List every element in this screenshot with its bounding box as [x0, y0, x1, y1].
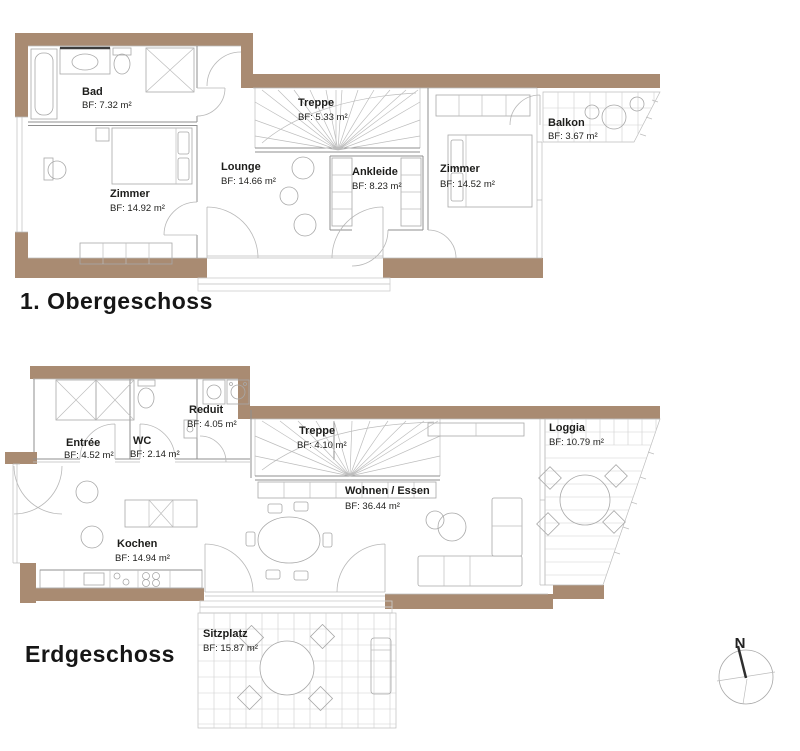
floor1-title: 1. Obergeschoss	[20, 288, 213, 314]
floor0-kitchen	[40, 481, 202, 588]
floor1-terrace-sill	[198, 278, 390, 291]
floor0-dining	[246, 502, 332, 580]
room-name-lounge: Lounge	[221, 161, 261, 173]
floor0-entree-furniture	[56, 380, 134, 420]
floor1-bedroom-right-furniture	[436, 95, 532, 207]
floor1-plan: Bad BF: 7.32 m² Zimmer BF: 14.92 m² Loun…	[15, 33, 660, 314]
room-area-treppe0: BF: 4.10 m²	[297, 440, 347, 451]
room-name-kochen: Kochen	[117, 538, 158, 550]
room-area-balkon: BF: 3.67 m²	[548, 131, 598, 142]
room-area-reduit: BF: 4.05 m²	[187, 419, 237, 430]
floor0-plan: Entrée BF: 4.52 m² WC BF: 2.14 m² Reduit…	[5, 366, 660, 728]
room-area-bad: BF: 7.32 m²	[82, 100, 132, 111]
floor1-lounge-furniture	[280, 157, 316, 236]
room-name-zimmer-l: Zimmer	[110, 188, 150, 200]
room-name-bad: Bad	[82, 86, 103, 98]
room-area-lounge: BF: 14.66 m²	[221, 176, 276, 187]
north-label: N	[735, 635, 746, 652]
room-area-wc: BF: 2.14 m²	[130, 449, 180, 460]
room-area-sitzplatz: BF: 15.87 m²	[203, 643, 258, 654]
room-area-treppe1: BF: 5.33 m²	[298, 112, 348, 123]
room-area-loggia: BF: 10.79 m²	[549, 437, 604, 448]
room-name-wc: WC	[133, 435, 151, 447]
room-area-kochen: BF: 14.94 m²	[115, 553, 170, 564]
floor0-sitzplatz	[198, 601, 396, 728]
room-name-wohnen: Wohnen / Essen	[345, 485, 430, 497]
room-name-loggia: Loggia	[549, 422, 586, 434]
floorplan-page: Bad BF: 7.32 m² Zimmer BF: 14.92 m² Loun…	[0, 0, 800, 751]
room-area-zimmer-l: BF: 14.92 m²	[110, 203, 165, 214]
room-name-treppe1: Treppe	[298, 97, 334, 109]
room-area-ankleide: BF: 8.23 m²	[352, 181, 402, 192]
room-name-zimmer-r: Zimmer	[440, 163, 480, 175]
compass: N	[717, 635, 775, 704]
floor0-title: Erdgeschoss	[25, 641, 175, 667]
room-area-wohnen: BF: 36.44 m²	[345, 501, 400, 512]
floorplan-drawing: Bad BF: 7.32 m² Zimmer BF: 14.92 m² Loun…	[0, 0, 800, 751]
room-name-balkon: Balkon	[548, 117, 585, 129]
room-name-reduit: Reduit	[189, 404, 224, 416]
room-name-entree: Entrée	[66, 437, 100, 449]
room-area-zimmer-r: BF: 14.52 m²	[440, 179, 495, 190]
floor0-walls	[5, 366, 660, 609]
floor0-living	[418, 423, 524, 586]
room-name-sitzplatz: Sitzplatz	[203, 628, 248, 640]
room-name-ankleide: Ankleide	[352, 166, 398, 178]
room-name-treppe0: Treppe	[299, 425, 335, 437]
room-area-entree: BF: 4.52 m²	[64, 450, 114, 461]
